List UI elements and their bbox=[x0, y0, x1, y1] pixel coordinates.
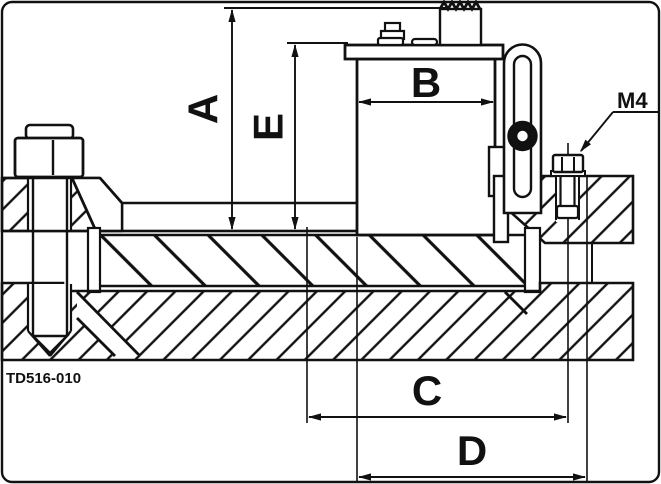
dimension-label-c: C bbox=[412, 367, 442, 414]
dimension-label-d: D bbox=[457, 427, 487, 474]
m4-hex-head bbox=[553, 155, 583, 172]
bolt-hex-head bbox=[15, 138, 83, 177]
part-number: TD516-010 bbox=[6, 370, 81, 387]
clamp-body bbox=[345, 2, 503, 235]
flat-screw-head bbox=[412, 39, 437, 45]
upper-plate-left bbox=[2, 177, 122, 231]
dimension-label-e: E bbox=[245, 113, 292, 141]
technical-drawing: A E B C D M4 TD516-010 bbox=[0, 0, 661, 484]
thread-callout-m4 bbox=[580, 112, 658, 152]
slide-plate-left-lip bbox=[88, 228, 100, 292]
body-top-flange bbox=[345, 45, 503, 59]
set-screw-knob bbox=[378, 23, 404, 45]
dimension-d bbox=[358, 473, 586, 480]
m4-thread-end bbox=[557, 206, 578, 218]
slide-plate bbox=[63, 228, 540, 292]
technical-drawing-page: A E B C D M4 TD516-010 bbox=[0, 0, 661, 484]
m4-shank bbox=[561, 176, 575, 208]
dimension-label-b: B bbox=[411, 59, 441, 106]
lever-arm bbox=[489, 45, 541, 243]
dimension-label-a: A bbox=[180, 94, 227, 124]
dimension-c bbox=[308, 413, 567, 420]
slide-plate-right-lip bbox=[525, 228, 540, 292]
knurled-knob bbox=[440, 2, 481, 45]
thread-callout-label: M4 bbox=[617, 88, 648, 113]
